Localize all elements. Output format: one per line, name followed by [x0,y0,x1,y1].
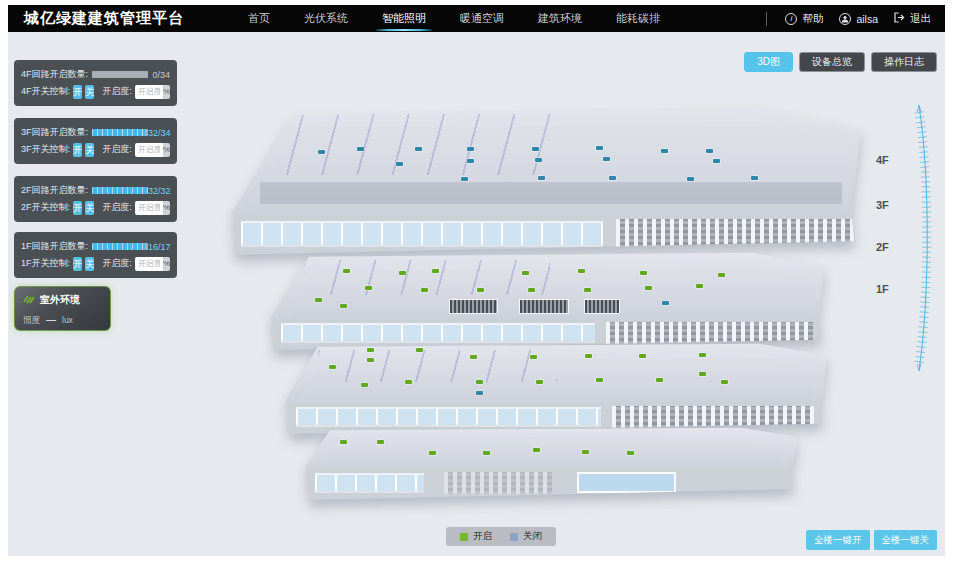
light-marker-on[interactable] [429,451,436,455]
device-overview-button[interactable]: 设备总览 [799,52,865,72]
floor-panel-2f: 2F回路开启数量: 32/32 2F开关控制: 开 关 开启度: % [14,176,177,222]
window-band [296,407,601,427]
circuit-progress-bar [92,243,148,250]
light-marker-off[interactable] [603,157,610,161]
floor-label-3f: 3F [876,199,900,211]
light-marker-off[interactable] [318,150,325,154]
switch-on-button-1f[interactable]: 开 [73,257,82,271]
percent-unit-button[interactable]: % [163,143,170,157]
nav-tab-home[interactable]: 首页 [246,5,272,32]
floor-fascia-1f [305,468,800,500]
light-marker-off[interactable] [461,177,468,181]
light-marker-on[interactable] [585,354,592,358]
dim-level-label: 开启度: [102,257,132,270]
floor-label-2f: 2F [876,241,900,253]
light-marker-off[interactable] [396,162,403,166]
light-marker-on[interactable] [476,380,483,384]
light-marker-on[interactable] [470,355,477,359]
light-marker-on[interactable] [399,271,406,275]
perforated-band [612,406,814,428]
glazed-section [577,472,676,492]
help-button[interactable]: i 帮助 [785,12,823,26]
illuminance-value: — [46,314,56,325]
light-marker-on[interactable] [639,354,646,358]
window-band [241,221,603,247]
switch-control-label: 4F开关控制: [21,85,70,98]
light-marker-off[interactable] [662,301,669,305]
dim-level-label: 开启度: [102,85,132,98]
main-nav: 首页 光伏系统 智能照明 暖通空调 建筑环境 能耗碳排 [246,5,662,32]
light-marker-on[interactable] [718,273,725,277]
roof-band [260,182,841,204]
perforated-band [616,219,855,248]
elevation-ruler[interactable] [906,102,936,374]
switch-control-label: 1F开关控制: [21,257,70,270]
light-marker-on[interactable] [340,304,347,308]
legend-item-on: 开启 [460,530,492,543]
header-right: i 帮助 ailsa 退出 [766,12,945,26]
light-marker-on[interactable] [528,288,535,292]
top-nav: 城亿绿建建筑管理平台 首页 光伏系统 智能照明 暖通空调 建筑环境 能耗碳排 i… [8,5,945,32]
light-marker-on[interactable] [343,269,350,273]
light-marker-off[interactable] [415,147,422,151]
percent-unit-button[interactable]: % [163,257,170,271]
percent-unit-button[interactable]: % [163,201,170,215]
nav-tab-smart-lighting[interactable]: 智能照明 [380,5,428,32]
light-marker-off[interactable] [357,147,364,151]
floor-panel-3f: 3F回路开启数量: 32/34 3F开关控制: 开 关 开启度: % [14,118,177,164]
light-marker-on[interactable] [377,440,384,444]
floor-label-4f: 4F [876,154,900,166]
perforated-band [444,472,553,494]
header-divider [766,12,767,26]
logout-button[interactable]: 退出 [894,12,931,26]
all-floors-on-button[interactable]: 全楼一键开 [806,530,870,550]
window-band [281,323,595,343]
illuminance-label: 照度 [23,315,40,327]
light-marker-on[interactable] [696,284,703,288]
switch-off-button-2f[interactable]: 关 [85,201,94,215]
floor-panel-1f: 1F回路开启数量: 16/17 1F开关控制: 开 关 开启度: % [14,232,177,278]
light-marker-on[interactable] [367,358,374,362]
dim-level-label: 开启度: [102,201,132,214]
floor-panel-4f: 4F回路开启数量: 0/34 4F开关控制: 开 关 开启度: % [14,60,177,106]
roof-vent [449,299,498,314]
light-marker-off[interactable] [467,147,474,151]
light-marker-on[interactable] [421,288,428,292]
user-avatar-icon [839,13,851,25]
circuit-count-label: 4F回路开启数量: [21,68,88,81]
legend-on-swatch [460,533,468,541]
light-marker-on[interactable] [645,286,652,290]
light-marker-off[interactable] [538,176,545,180]
light-marker-on[interactable] [584,288,591,292]
light-marker-on[interactable] [432,269,439,273]
dim-level-input-2f[interactable] [135,201,163,215]
switch-control-label: 2F开关控制: [21,201,70,214]
user-menu[interactable]: ailsa [839,13,878,25]
light-marker-on[interactable] [477,288,484,292]
light-marker-on[interactable] [361,383,368,387]
view-switcher: 3D图 设备总览 操作日志 [744,52,937,72]
floor-surface-1f[interactable] [305,426,800,468]
switch-off-button-4f[interactable]: 关 [85,85,94,99]
light-marker-off[interactable] [532,147,539,151]
building-floor-4f[interactable] [228,98,874,256]
light-marker-on[interactable] [578,269,585,273]
light-marker-on[interactable] [656,378,663,382]
help-label: 帮助 [802,12,823,26]
nav-tab-hvac[interactable]: 暖通空调 [458,5,506,32]
light-marker-on[interactable] [367,348,374,352]
illuminance-unit: lux [62,315,73,325]
switch-control-label: 3F开关控制: [21,143,70,156]
nav-tab-pv-system[interactable]: 光伏系统 [302,5,350,32]
switch-on-button-2f[interactable]: 开 [73,201,82,215]
light-marker-on[interactable] [365,286,372,290]
light-marker-on[interactable] [416,348,423,352]
app-frame: 城亿绿建建筑管理平台 首页 光伏系统 智能照明 暖通空调 建筑环境 能耗碳排 i… [8,5,945,556]
nav-tab-building-env[interactable]: 建筑环境 [536,5,584,32]
circuit-count-value: 0/34 [152,70,170,80]
legend-item-off: 关闭 [510,530,542,543]
circuit-count-label: 3F回路开启数量: [21,126,88,139]
circuit-progress-bar [92,187,148,194]
percent-unit-button[interactable]: % [163,85,170,99]
light-marker-off[interactable] [713,159,720,163]
app-title: 城亿绿建建筑管理平台 [24,9,184,28]
roof-vent [584,299,620,314]
outdoor-env-panel: 室外环境 照度 — lux [14,286,111,331]
3d-viewport[interactable]: 3D图 设备总览 操作日志 4F回路开启数量: 0/34 4F开关控制: 开 关… [8,32,945,556]
logout-label: 退出 [910,12,931,26]
floor-surface-2f[interactable] [285,342,830,402]
light-marker-on[interactable] [329,365,336,369]
circuit-count-value: 32/34 [148,128,171,138]
circuit-progress-bar [92,71,148,78]
dim-level-input-4f[interactable] [135,85,163,99]
light-marker-on[interactable] [533,448,540,452]
floor-label-1f: 1F [876,283,900,295]
floor-surface-3f[interactable] [270,250,830,318]
nav-tab-energy-carbon[interactable]: 能耗碳排 [614,5,662,32]
light-marker-off[interactable] [661,149,668,153]
sun-rays-icon [23,294,35,306]
light-marker-on[interactable] [536,380,543,384]
light-marker-on[interactable] [699,372,706,376]
light-marker-on[interactable] [530,355,537,359]
light-marker-on[interactable] [627,451,634,455]
light-marker-off[interactable] [476,391,483,395]
all-floors-off-button[interactable]: 全楼一键关 [874,530,938,550]
interior-partitions [267,114,551,174]
light-marker-on[interactable] [340,440,347,444]
circuit-count-value: 16/17 [148,242,171,252]
legend-off-swatch [510,533,518,541]
circuit-count-value: 32/32 [148,186,171,196]
info-icon: i [785,13,797,25]
username-label: ailsa [856,13,878,25]
status-legend: 开启 关闭 [446,527,556,546]
outdoor-env-title: 室外环境 [40,293,80,307]
building-floor-2f[interactable] [285,342,830,434]
building-floor-3f[interactable] [270,250,830,350]
view-3d-button[interactable]: 3D图 [744,52,793,72]
building-floor-1f[interactable] [305,426,800,500]
perforated-band [606,322,813,344]
light-marker-on[interactable] [582,450,589,454]
light-marker-off[interactable] [687,177,694,181]
light-marker-off[interactable] [467,159,474,163]
legend-off-label: 关闭 [523,530,542,543]
light-marker-off[interactable] [751,176,758,180]
light-marker-on[interactable] [483,451,490,455]
light-marker-on[interactable] [721,380,728,384]
switch-on-button-4f[interactable]: 开 [73,85,82,99]
light-marker-off[interactable] [609,176,616,180]
light-marker-on[interactable] [522,271,529,275]
light-marker-on[interactable] [699,353,706,357]
light-marker-on[interactable] [640,271,647,275]
light-marker-on[interactable] [596,378,603,382]
switch-off-button-1f[interactable]: 关 [85,257,94,271]
circuit-count-label: 1F回路开启数量: [21,240,88,253]
dim-level-label: 开启度: [102,143,132,156]
switch-on-button-3f[interactable]: 开 [73,143,82,157]
light-marker-off[interactable] [535,158,542,162]
dim-level-input-3f[interactable] [135,143,163,157]
floor-surface-4f[interactable] [228,98,874,214]
roof-vent [519,299,569,314]
circuit-progress-bar [92,129,148,136]
dim-level-input-1f[interactable] [135,257,163,271]
light-marker-on[interactable] [315,298,322,302]
window-band [315,473,424,493]
light-marker-off[interactable] [706,149,713,153]
interior-partitions [318,350,558,381]
light-marker-on[interactable] [405,380,412,384]
bulk-actions: 全楼一键开 全楼一键关 [806,530,937,550]
circuit-count-label: 2F回路开启数量: [21,184,88,197]
operation-log-button[interactable]: 操作日志 [871,52,937,72]
legend-on-label: 开启 [473,530,492,543]
light-marker-off[interactable] [596,146,603,150]
switch-off-button-3f[interactable]: 关 [85,143,94,157]
logout-icon [894,12,905,25]
